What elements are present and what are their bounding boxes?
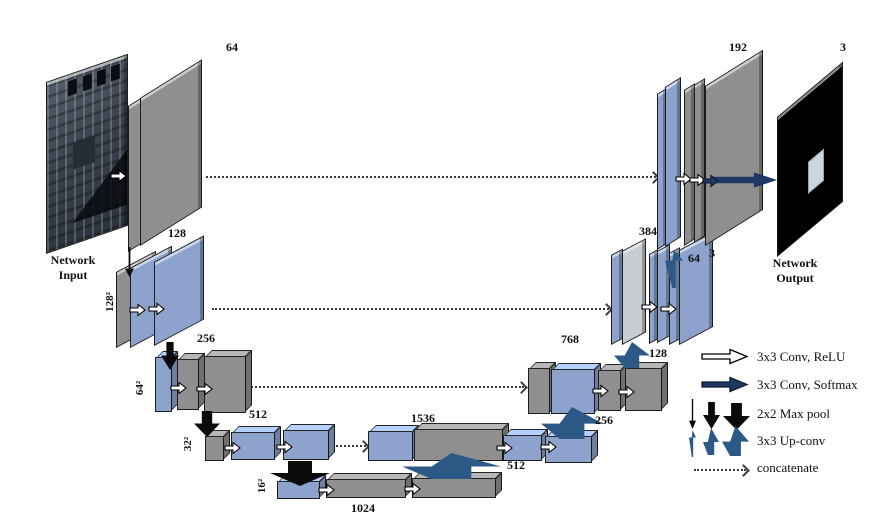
decoder-l1-output-map-plate [705, 50, 763, 246]
conv-relu-arrow-icon [276, 440, 293, 454]
conv-relu-arrow-icon [660, 302, 677, 316]
label-size-128: 128² [104, 280, 116, 324]
label-size-32: 32² [182, 426, 194, 462]
conv-relu-arrow-icon [618, 385, 635, 399]
conv-relu-arrow-icon [110, 169, 127, 183]
label-encoder-128: 128 [157, 226, 197, 241]
conv-relu-arrow-icon [496, 441, 513, 455]
label-upconv-256: 256 [584, 413, 624, 428]
unet-architecture-diagram: Network Input 64 128 128² 256 64² 512 32… [0, 0, 888, 529]
decoder-l1-conv2-plate [694, 78, 705, 243]
legend-label-up-conv: 3x3 Up-conv [757, 433, 825, 449]
label-encoder-1024: 1024 [338, 501, 388, 516]
label-decoder-384: 384 [628, 224, 668, 239]
decoder-l3-concat-gray-box [528, 368, 550, 414]
concatenate-line-level1 [206, 176, 656, 178]
legend-up-conv-medium-icon [703, 428, 719, 455]
network-output-caption: Network Output [740, 256, 850, 286]
conv-relu-arrow-icon [148, 302, 165, 316]
label-encoder-512: 512 [238, 407, 278, 422]
concatenate-line-level4 [336, 445, 366, 447]
decoder-l4-concat-blue-box [368, 431, 413, 461]
legend-up-conv-small-icon [689, 430, 696, 457]
legend-label-conv-relu: 3x3 Conv, ReLU [757, 349, 845, 365]
conv-relu-arrow-icon [404, 482, 421, 496]
label-decoder-768: 768 [548, 332, 592, 347]
network-input-caption: Network Input [18, 253, 128, 283]
label-upconv-128: 128 [640, 346, 676, 361]
conv-relu-arrow-icon [318, 483, 335, 497]
conv-relu-arrow-icon [170, 381, 187, 395]
legend-label-max-pool: 2x2 Max pool [757, 406, 830, 422]
legend-concatenate-line-icon [694, 469, 746, 471]
conv-relu-arrow-icon [224, 441, 241, 455]
label-decoder-512: 512 [496, 458, 536, 473]
conv-relu-arrow-icon [540, 440, 557, 454]
legend-label-conv-softmax: 3x3 Conv, Softmax [757, 377, 858, 393]
concatenate-line-level3 [248, 386, 524, 388]
label-size-16: 16² [256, 470, 268, 502]
encoder-l5-conv2-box [412, 478, 496, 498]
label-decoder-1536: 1536 [395, 411, 451, 426]
label-encoder-256: 256 [186, 331, 226, 346]
conv-softmax-arrow-icon [702, 174, 719, 188]
legend-max-pool-small-icon [689, 399, 696, 429]
label-decoder-192: 192 [716, 40, 760, 55]
network-input-image [46, 54, 128, 254]
arrowhead-icon [737, 464, 750, 477]
legend-conv-relu-arrow-icon [701, 348, 749, 365]
legend-label-concatenate: concatenate [757, 460, 818, 476]
conv-relu-arrow-icon [129, 303, 146, 317]
label-decoder-3: 3 [702, 246, 722, 261]
encoder-l1-conv2-plate [140, 59, 202, 246]
legend-max-pool-large-icon [723, 403, 750, 430]
concatenate-line-level2 [212, 308, 609, 310]
label-size-64: 64² [134, 368, 146, 408]
conv-relu-arrow-icon [641, 300, 658, 314]
conv-relu-arrow-icon [196, 382, 213, 396]
legend-conv-softmax-arrow-icon [701, 376, 749, 393]
decoder-l2-concat-upconv-plate [622, 238, 646, 345]
segmentation-region [808, 149, 824, 194]
decoder-l3-concat-blue-box [551, 369, 595, 414]
label-encoder-64: 64 [212, 40, 252, 55]
decoder-l1-concat-upconv-plate [665, 77, 681, 247]
conv-relu-arrow-icon [592, 384, 609, 398]
label-output-3: 3 [828, 40, 858, 55]
arrowhead-icon [515, 381, 528, 394]
legend-max-pool-medium-icon [703, 402, 720, 429]
legend-up-conv-large-icon [722, 426, 749, 456]
encoder-l5-conv1-box [326, 479, 406, 498]
network-output-image [777, 62, 843, 257]
encoder-l4-pool-box [205, 436, 224, 461]
